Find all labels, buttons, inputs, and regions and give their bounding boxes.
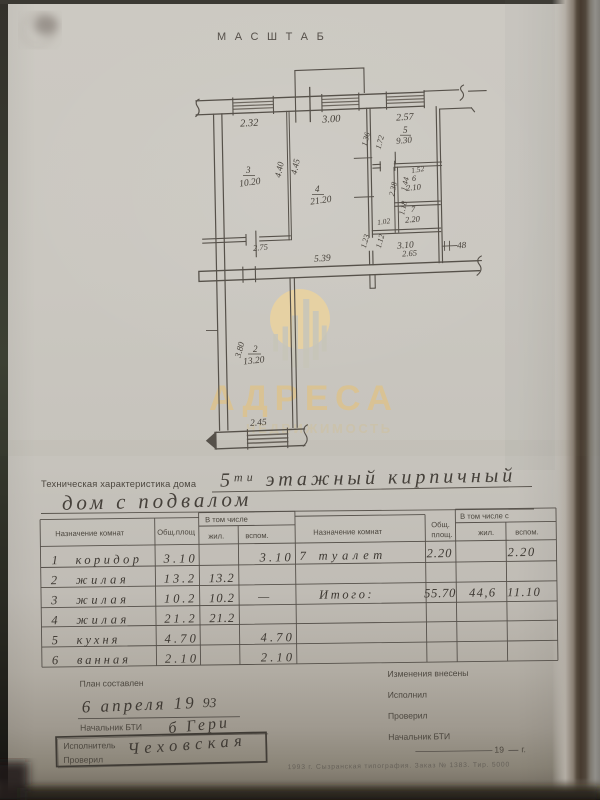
svg-text:4.40: 4.40: [273, 160, 286, 178]
svg-text:жил.: жил.: [478, 528, 494, 537]
svg-text:кухня: кухня: [77, 632, 121, 647]
svg-text:дом с подвалом: дом с подвалом: [62, 487, 253, 515]
svg-text:2.20: 2.20: [405, 213, 421, 224]
svg-text:2.57: 2.57: [396, 112, 415, 124]
svg-text:Проверил: Проверил: [388, 710, 428, 720]
svg-text:План составлен: План составлен: [79, 678, 143, 689]
svg-text:2: 2: [51, 573, 60, 587]
svg-text:21.20: 21.20: [310, 195, 333, 208]
svg-text:Общ.площ: Общ.площ: [157, 527, 196, 537]
svg-text:жилая: жилая: [76, 612, 130, 627]
svg-text:Назначение комнат: Назначение комнат: [313, 527, 383, 537]
svg-text:5: 5: [403, 125, 408, 135]
svg-text:вспом.: вспом.: [245, 531, 269, 540]
svg-text:В том числе: В том числе: [205, 515, 248, 525]
svg-text:4: 4: [315, 184, 320, 194]
svg-text:21.2: 21.2: [164, 611, 197, 625]
svg-text:10.20: 10.20: [239, 177, 262, 190]
svg-text:Назначение комнат: Назначение комнат: [55, 528, 125, 538]
svg-text:2.20: 2.20: [426, 546, 452, 560]
svg-text:—: —: [257, 589, 272, 603]
svg-text:3.10: 3.10: [162, 551, 197, 565]
svg-text:Общ.: Общ.: [431, 520, 450, 529]
svg-text:1.12: 1.12: [374, 233, 386, 249]
svg-text:19: 19: [494, 745, 504, 755]
svg-text:10.2: 10.2: [164, 591, 197, 605]
svg-text:1.02: 1.02: [377, 216, 391, 227]
svg-text:5.39: 5.39: [314, 254, 332, 265]
svg-text:6 апреля 19: 6 апреля 19: [81, 693, 197, 716]
svg-text:НЕДВИЖИМОСТЬ: НЕДВИЖИМОСТЬ: [246, 421, 393, 436]
svg-text:3.10: 3.10: [258, 550, 293, 564]
svg-text:ванная: ванная: [77, 652, 131, 667]
svg-text:жилая: жилая: [76, 572, 130, 587]
svg-text:44,6: 44,6: [469, 585, 497, 599]
svg-text:коридор: коридор: [75, 552, 142, 567]
svg-text:7: 7: [411, 205, 416, 214]
svg-text:Начальник БТИ: Начальник БТИ: [388, 731, 450, 742]
svg-text:21.2: 21.2: [209, 611, 235, 625]
svg-text:48: 48: [457, 240, 467, 251]
svg-text:2.38: 2.38: [387, 181, 399, 197]
svg-text:13.20: 13.20: [243, 355, 266, 367]
svg-text:2.20: 2.20: [507, 545, 535, 559]
svg-text:2.75: 2.75: [253, 242, 269, 253]
svg-text:2.32: 2.32: [240, 118, 260, 130]
svg-text:1.23: 1.23: [359, 233, 371, 249]
svg-text:г.: г.: [521, 744, 526, 754]
svg-text:2.10: 2.10: [165, 651, 199, 665]
svg-text:МАСШТАБ: МАСШТАБ: [217, 31, 332, 43]
svg-text:4.70: 4.70: [165, 631, 199, 645]
svg-text:3: 3: [50, 593, 60, 607]
svg-text:10.2: 10.2: [209, 591, 235, 605]
svg-text:туалет: туалет: [318, 548, 386, 563]
svg-text:Итого:: Итого:: [318, 587, 374, 602]
svg-text:5: 5: [52, 633, 61, 647]
svg-text:13.2: 13.2: [209, 571, 235, 585]
svg-text:7: 7: [299, 549, 308, 563]
svg-text:вспом.: вспом.: [515, 527, 539, 536]
svg-text:2.45: 2.45: [250, 418, 268, 429]
svg-text:1.18: 1.18: [397, 200, 409, 216]
svg-text:11.10: 11.10: [507, 585, 541, 599]
svg-text:2.10: 2.10: [261, 650, 295, 664]
svg-text:3: 3: [245, 165, 251, 175]
svg-text:4: 4: [51, 613, 60, 627]
svg-text:жилая: жилая: [76, 592, 130, 607]
svg-text:3.00: 3.00: [321, 114, 342, 126]
svg-text:55.70: 55.70: [424, 586, 456, 600]
svg-text:2.65: 2.65: [402, 248, 417, 259]
svg-text:2: 2: [253, 344, 258, 354]
svg-text:13.2: 13.2: [164, 571, 197, 585]
svg-text:площ.: площ.: [431, 530, 452, 539]
svg-text:1: 1: [51, 553, 60, 567]
svg-text:АДРЕСА: АДРЕСА: [209, 378, 399, 418]
svg-text:Техническая характеристика дом: Техническая характеристика дома: [41, 479, 197, 489]
svg-text:жил.: жил.: [208, 531, 224, 540]
svg-text:Начальник БТИ: Начальник БТИ: [80, 722, 142, 733]
svg-text:Исполнил: Исполнил: [388, 689, 427, 699]
svg-text:4.70: 4.70: [261, 630, 295, 644]
svg-text:6: 6: [52, 653, 61, 667]
svg-text:Проверил: Проверил: [63, 754, 103, 764]
svg-text:4.45: 4.45: [289, 157, 302, 175]
svg-text:В том числе с: В том числе с: [460, 511, 509, 521]
svg-text:Изменения внесены: Изменения внесены: [387, 668, 468, 679]
svg-text:93: 93: [203, 695, 217, 710]
svg-text:1.72: 1.72: [374, 134, 386, 150]
svg-text:1993 г. Сызранская типографи: 1993 г. Сызранская типография. Заказ № 1…: [288, 761, 510, 771]
svg-text:9.30: 9.30: [396, 134, 413, 145]
svg-text:Исполнитель: Исполнитель: [63, 740, 116, 751]
